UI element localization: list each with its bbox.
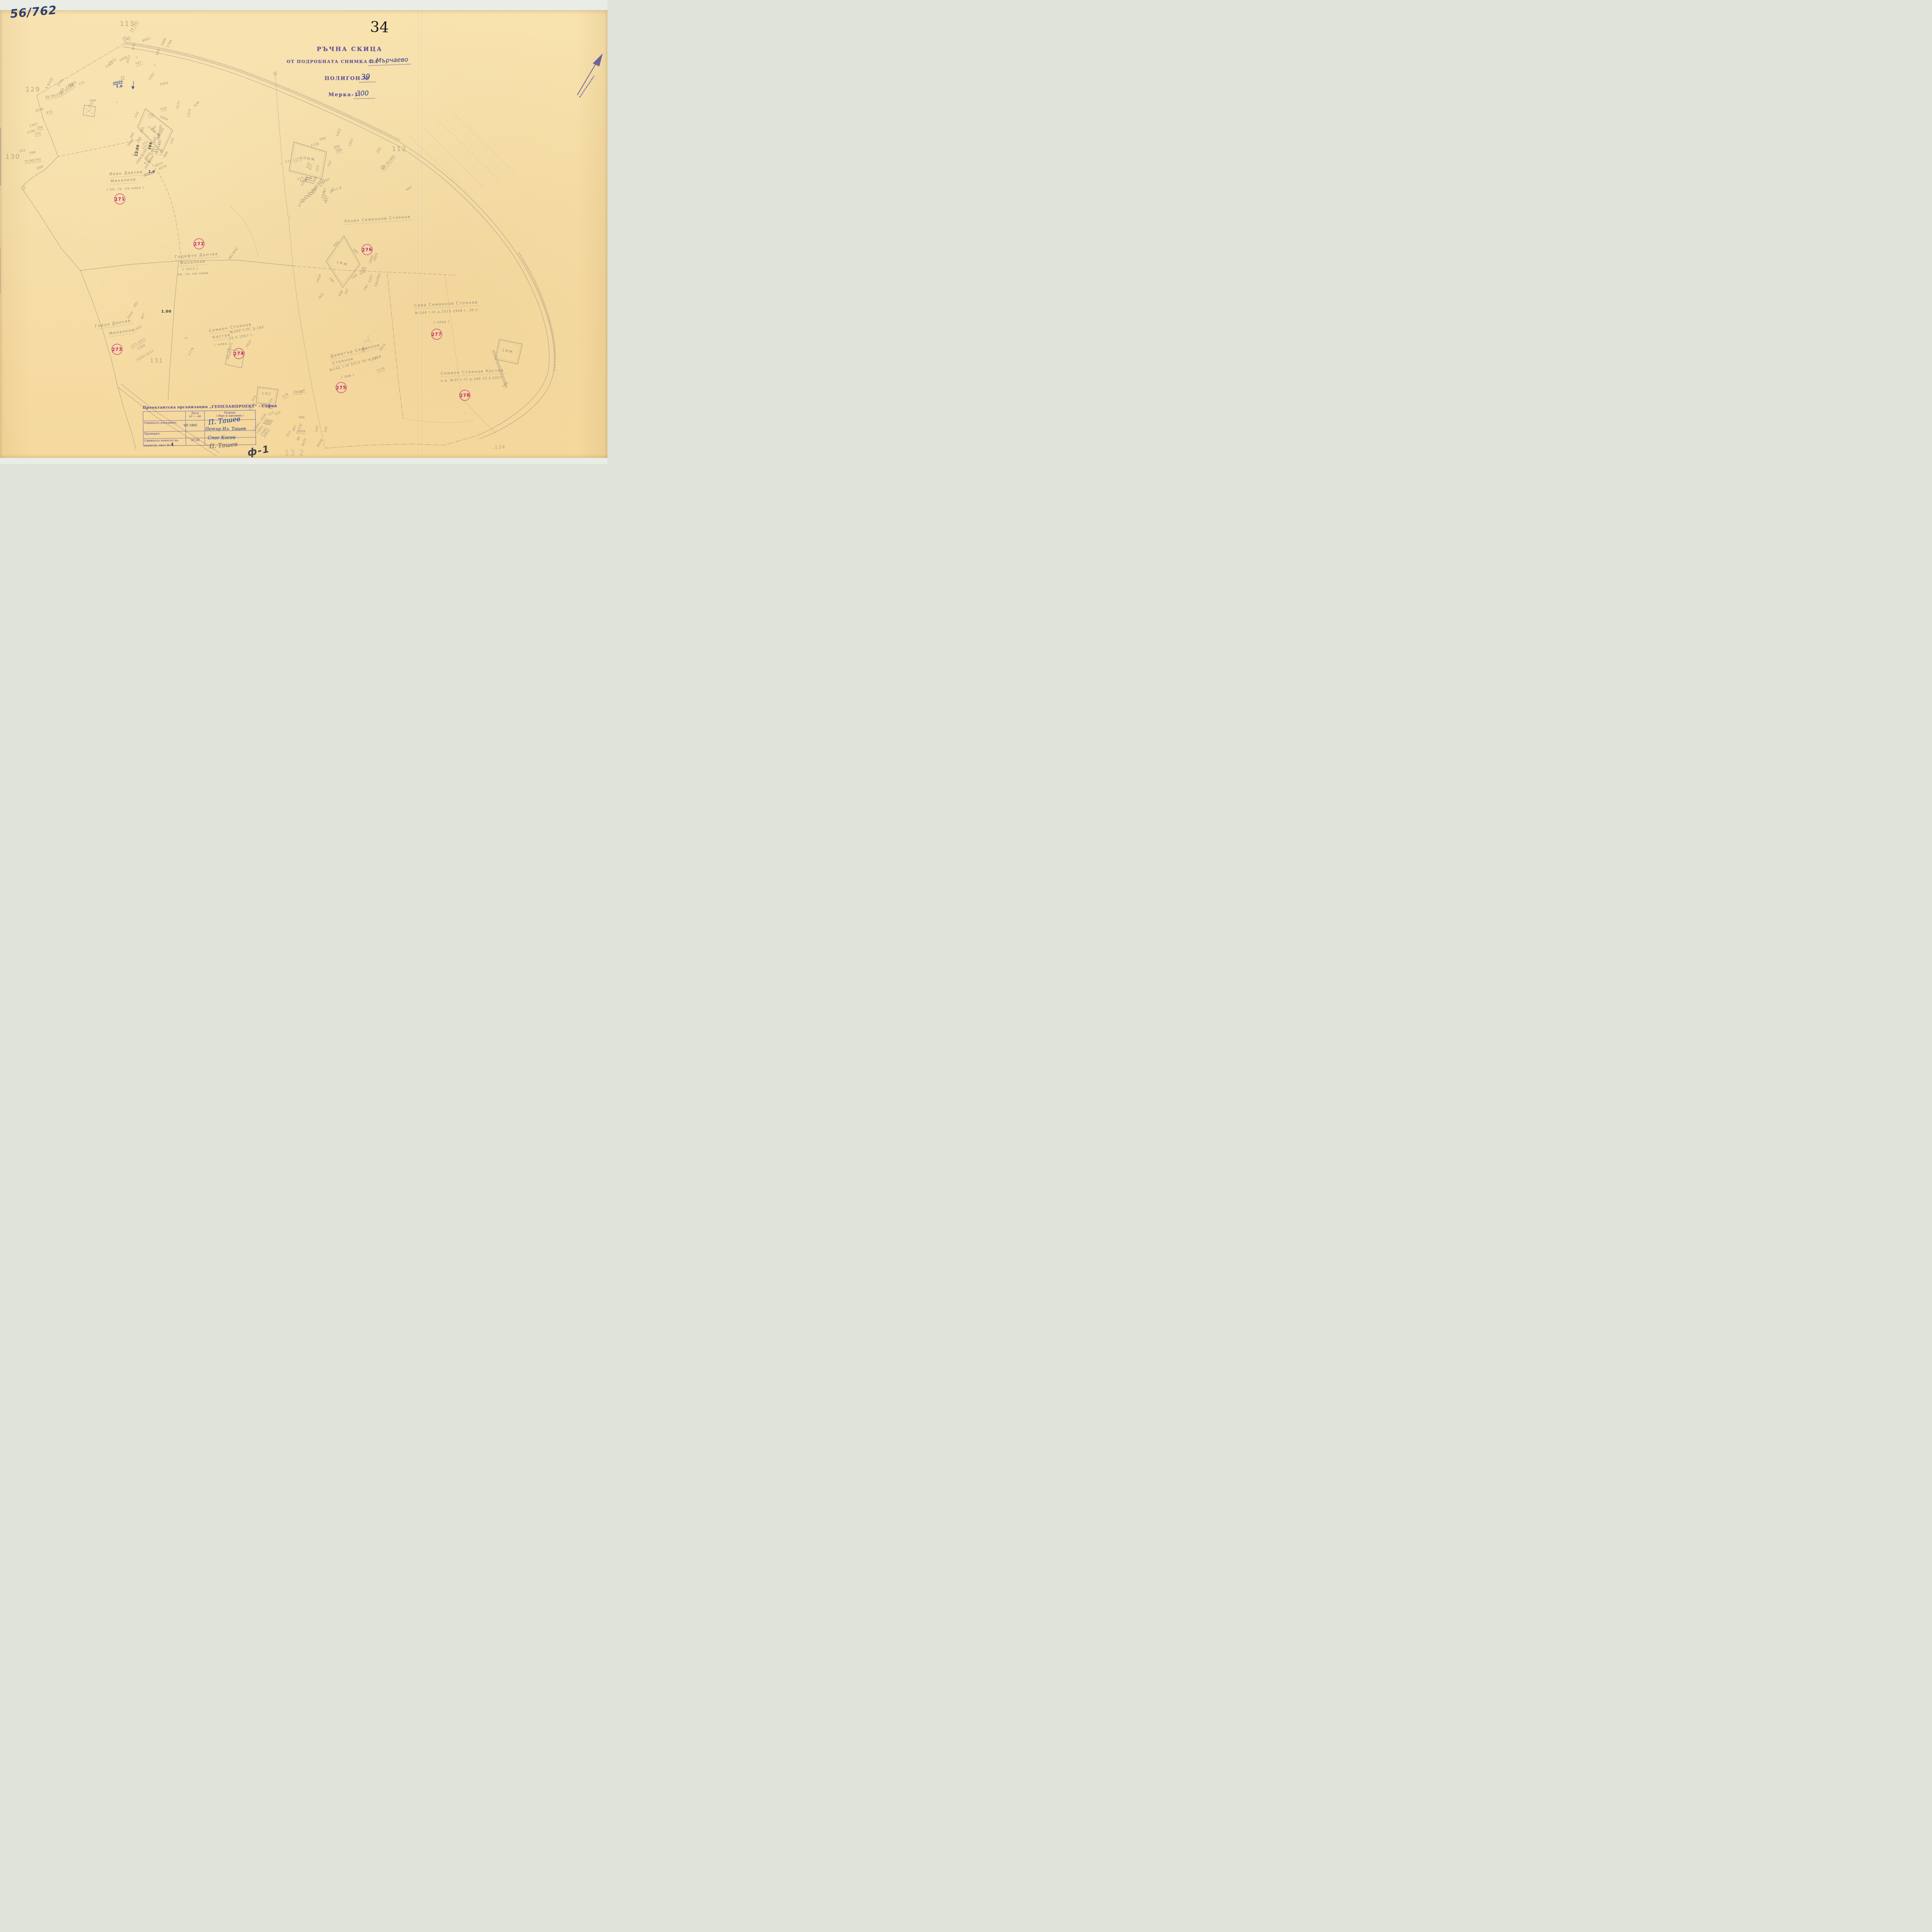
table-corner-cell bbox=[143, 411, 186, 421]
row-plotted-date: III 66 bbox=[186, 438, 206, 446]
parcel-number-badge: 274 bbox=[233, 348, 244, 359]
scale-value-handwritten: 300 bbox=[354, 90, 375, 99]
sketch-subtitle: ОТ ПОДРОБНАТА СНИМКА НА bbox=[287, 59, 378, 64]
sketch-title: РЪЧНА СКИЦА bbox=[305, 46, 394, 53]
parcel-number-badge: 272 bbox=[193, 238, 204, 249]
parcel-number-badge: 271 bbox=[114, 193, 125, 204]
row-checked-date bbox=[186, 431, 205, 439]
parcel-number-badge: 277 bbox=[431, 328, 442, 340]
survey-date-handwritten: VII 1965 bbox=[184, 423, 197, 427]
table-header-date: Датаот — до bbox=[186, 411, 205, 421]
organization-title: Проектантска организация „ГЕОПЛАНПРОЕКТ“… bbox=[143, 404, 255, 410]
parcel-numbers-layer: 271272273274275276277278 bbox=[0, 0, 607, 464]
row-checked-label: Проверил: bbox=[143, 431, 186, 439]
parcel-number-badge: 278 bbox=[459, 389, 470, 401]
sketch-sheet-number: 34 bbox=[370, 18, 389, 36]
row-survey-label: Снимката извършил: bbox=[143, 420, 186, 432]
organization-stamp-block: Проектантска организация „ГЕОПЛАНПРОЕКТ“… bbox=[143, 404, 256, 446]
surveyor-name: Петър Ил. Ташев bbox=[205, 426, 246, 432]
parcel-number-badge: 273 bbox=[111, 344, 122, 355]
row-plotted-label: Снимката нанесъл на кадастр. лист № 4 bbox=[143, 438, 186, 446]
checker-signature: Спас Косев bbox=[207, 435, 235, 440]
cadastre-sheet-number-ink: 4 bbox=[171, 442, 174, 447]
polygon-number-handwritten: 39 bbox=[359, 72, 376, 83]
parcel-number-badge: 276 bbox=[361, 244, 372, 255]
scanned-sheet: 27744 6(45)76913581083771399271204847213… bbox=[0, 0, 607, 464]
signature-table: Датаот — до Подпис/ Име и презиме / Сним… bbox=[143, 410, 256, 446]
village-name-handwritten: с. Мърчаево bbox=[368, 56, 411, 66]
parcel-number-badge: 275 bbox=[335, 382, 347, 393]
